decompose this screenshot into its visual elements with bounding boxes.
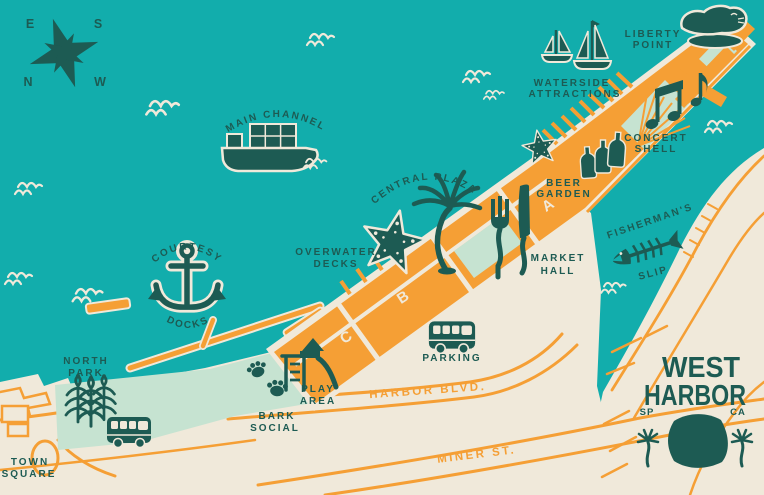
market-hall-label: HALL [541,266,576,277]
town-block [2,406,28,422]
north-park-label: PARK [68,368,104,379]
town-square-label: TOWN [11,457,49,468]
logo-sp: SP [640,407,655,418]
play-area-label: PLAY [301,384,335,395]
vw-bus-icon [107,417,151,448]
compass-n: N [23,75,32,89]
map-canvas: E S N W [0,0,764,495]
liberty-point-label: LIBERTY [625,29,682,40]
north-park-label: NORTH [63,356,109,367]
west-harbor-map: E S N W [0,0,764,495]
liberty-point-label: POINT [633,40,674,51]
logo-blob [668,414,728,468]
vw-bus-icon [429,321,475,353]
parking-label: PARKING [422,353,481,364]
bark-social-label: SOCIAL [250,423,300,434]
town-block [8,424,28,436]
bark-social-label: BARK [259,411,296,422]
play-area-label: AREA [300,396,336,407]
concert-shell-label: SHELL [635,144,678,155]
overwater-decks-label: OVERWATER [295,247,377,258]
overwater-decks-label: DECKS [313,259,358,270]
market-hall-label: MARKET [531,253,586,264]
logo-ca: CA [730,407,746,418]
compass-w: W [94,75,106,89]
compass-s: S [94,17,102,31]
waterside-attractions-label: ATTRACTIONS [529,89,622,100]
beer-garden-label: BEER [546,178,582,189]
waterside-attractions-label: WATERSIDE [534,78,611,89]
town-square-label: SQUARE [2,469,57,480]
sea-lion-icon [681,6,746,48]
compass-e: E [26,17,34,31]
concert-shell-label: CONCERT [624,133,687,144]
